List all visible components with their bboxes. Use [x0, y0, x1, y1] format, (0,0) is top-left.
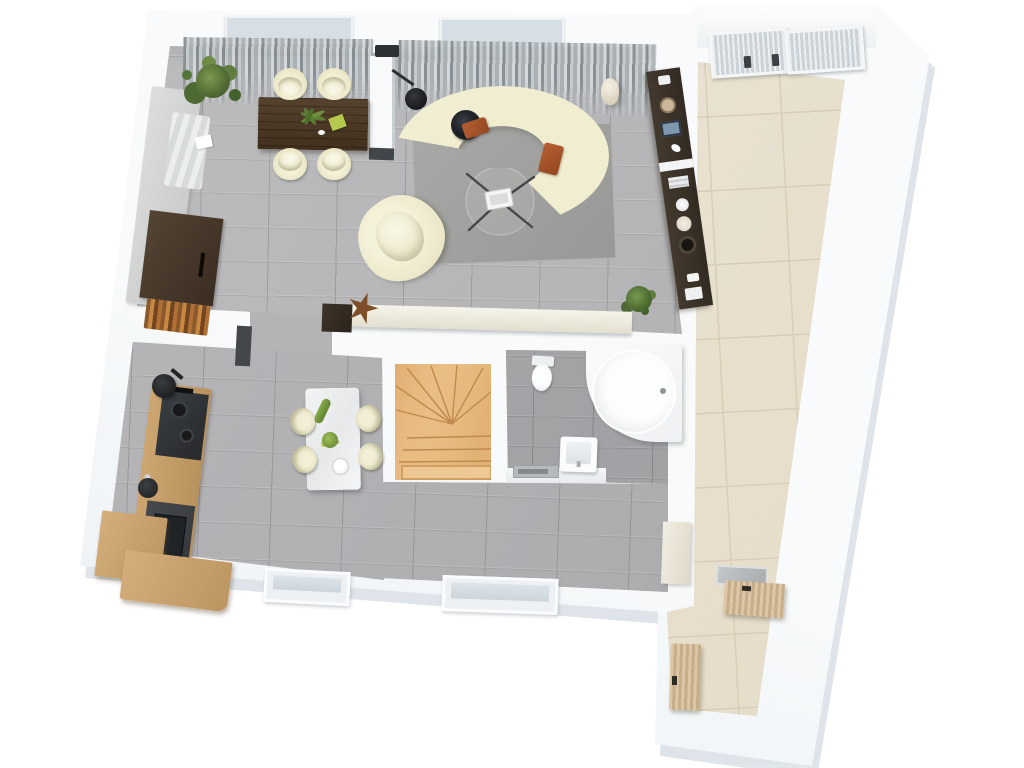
yellow-flowers	[322, 432, 338, 448]
decor-towels	[668, 175, 689, 189]
cooktop	[155, 389, 209, 460]
winder-staircase	[395, 364, 491, 480]
decor-bowl-dark	[677, 235, 697, 255]
wall-unit-gap	[659, 158, 694, 172]
decor-clock	[659, 96, 677, 114]
floor-plan-scene	[0, 0, 1024, 768]
wall-stub-end-cap	[369, 148, 394, 161]
decor-candle	[687, 273, 700, 283]
cabinet-handle-top	[742, 586, 751, 592]
bottom-window-left	[263, 568, 351, 606]
skylight-right	[785, 25, 866, 74]
bar-chair-left-top	[290, 408, 315, 435]
black-kettle	[152, 374, 176, 398]
sideboard-dark-end	[322, 303, 353, 332]
decor-bottle	[658, 75, 671, 86]
fireplace-cabinet	[135, 210, 223, 338]
dining-chair-top-left	[273, 68, 307, 100]
bar-chair-right-bottom	[358, 443, 383, 470]
bar-chair-right-top	[356, 405, 381, 432]
fern-centerpiece	[288, 104, 318, 128]
skylight-handle-right	[772, 54, 780, 66]
firewood-storage	[144, 298, 211, 336]
skylight-handle-left	[744, 56, 752, 68]
dining-chair-bottom-left	[273, 148, 307, 180]
cabinet-handle-side	[672, 676, 677, 685]
table-decor-dot	[318, 130, 325, 135]
cream-pillar-cabinet	[661, 522, 691, 585]
bar-chair-left-bottom	[292, 446, 317, 473]
decor-bowl-white	[675, 197, 690, 212]
kitchen-wall-end-cap	[235, 326, 252, 367]
black-pot	[138, 478, 158, 498]
coffee-table	[460, 168, 540, 238]
tub-drain	[660, 388, 666, 394]
toilet-bowl	[531, 363, 553, 391]
floor-vase	[601, 78, 619, 105]
washbasin	[559, 436, 597, 472]
fireplace-body	[139, 210, 223, 306]
bathroom-tray	[513, 465, 559, 478]
potted-plant-small	[626, 286, 652, 312]
wall-vent-unit	[375, 45, 399, 57]
toilet	[529, 355, 556, 395]
decor-box	[685, 286, 704, 300]
floor-lamp-head	[405, 88, 427, 110]
decor-frame	[660, 120, 682, 138]
potted-plant-large	[196, 64, 230, 98]
decor-bowl-cream	[676, 215, 693, 232]
white-bowl	[332, 458, 349, 475]
wood-cabinet-top	[723, 580, 785, 618]
bottom-window-right	[441, 575, 558, 615]
decor-shell	[670, 142, 682, 153]
